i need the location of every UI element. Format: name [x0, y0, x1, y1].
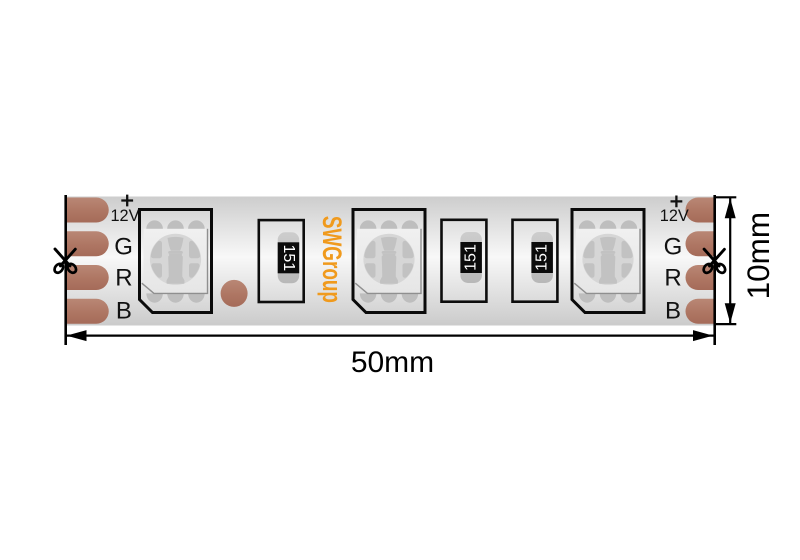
svg-text:B: B — [665, 297, 681, 324]
svg-text:B: B — [116, 297, 132, 324]
svg-text:SWGroup: SWGroup — [317, 216, 347, 303]
svg-text:12V: 12V — [111, 207, 140, 225]
svg-text:12V: 12V — [660, 207, 689, 225]
svg-text:151: 151 — [280, 244, 297, 271]
svg-text:G: G — [664, 233, 683, 260]
svg-text:R: R — [664, 265, 681, 292]
svg-text:151: 151 — [534, 244, 551, 271]
svg-text:10mm: 10mm — [740, 212, 776, 300]
svg-text:151: 151 — [463, 244, 480, 271]
svg-text:G: G — [114, 233, 133, 260]
svg-text:50mm: 50mm — [351, 346, 434, 379]
svg-text:R: R — [115, 265, 132, 292]
